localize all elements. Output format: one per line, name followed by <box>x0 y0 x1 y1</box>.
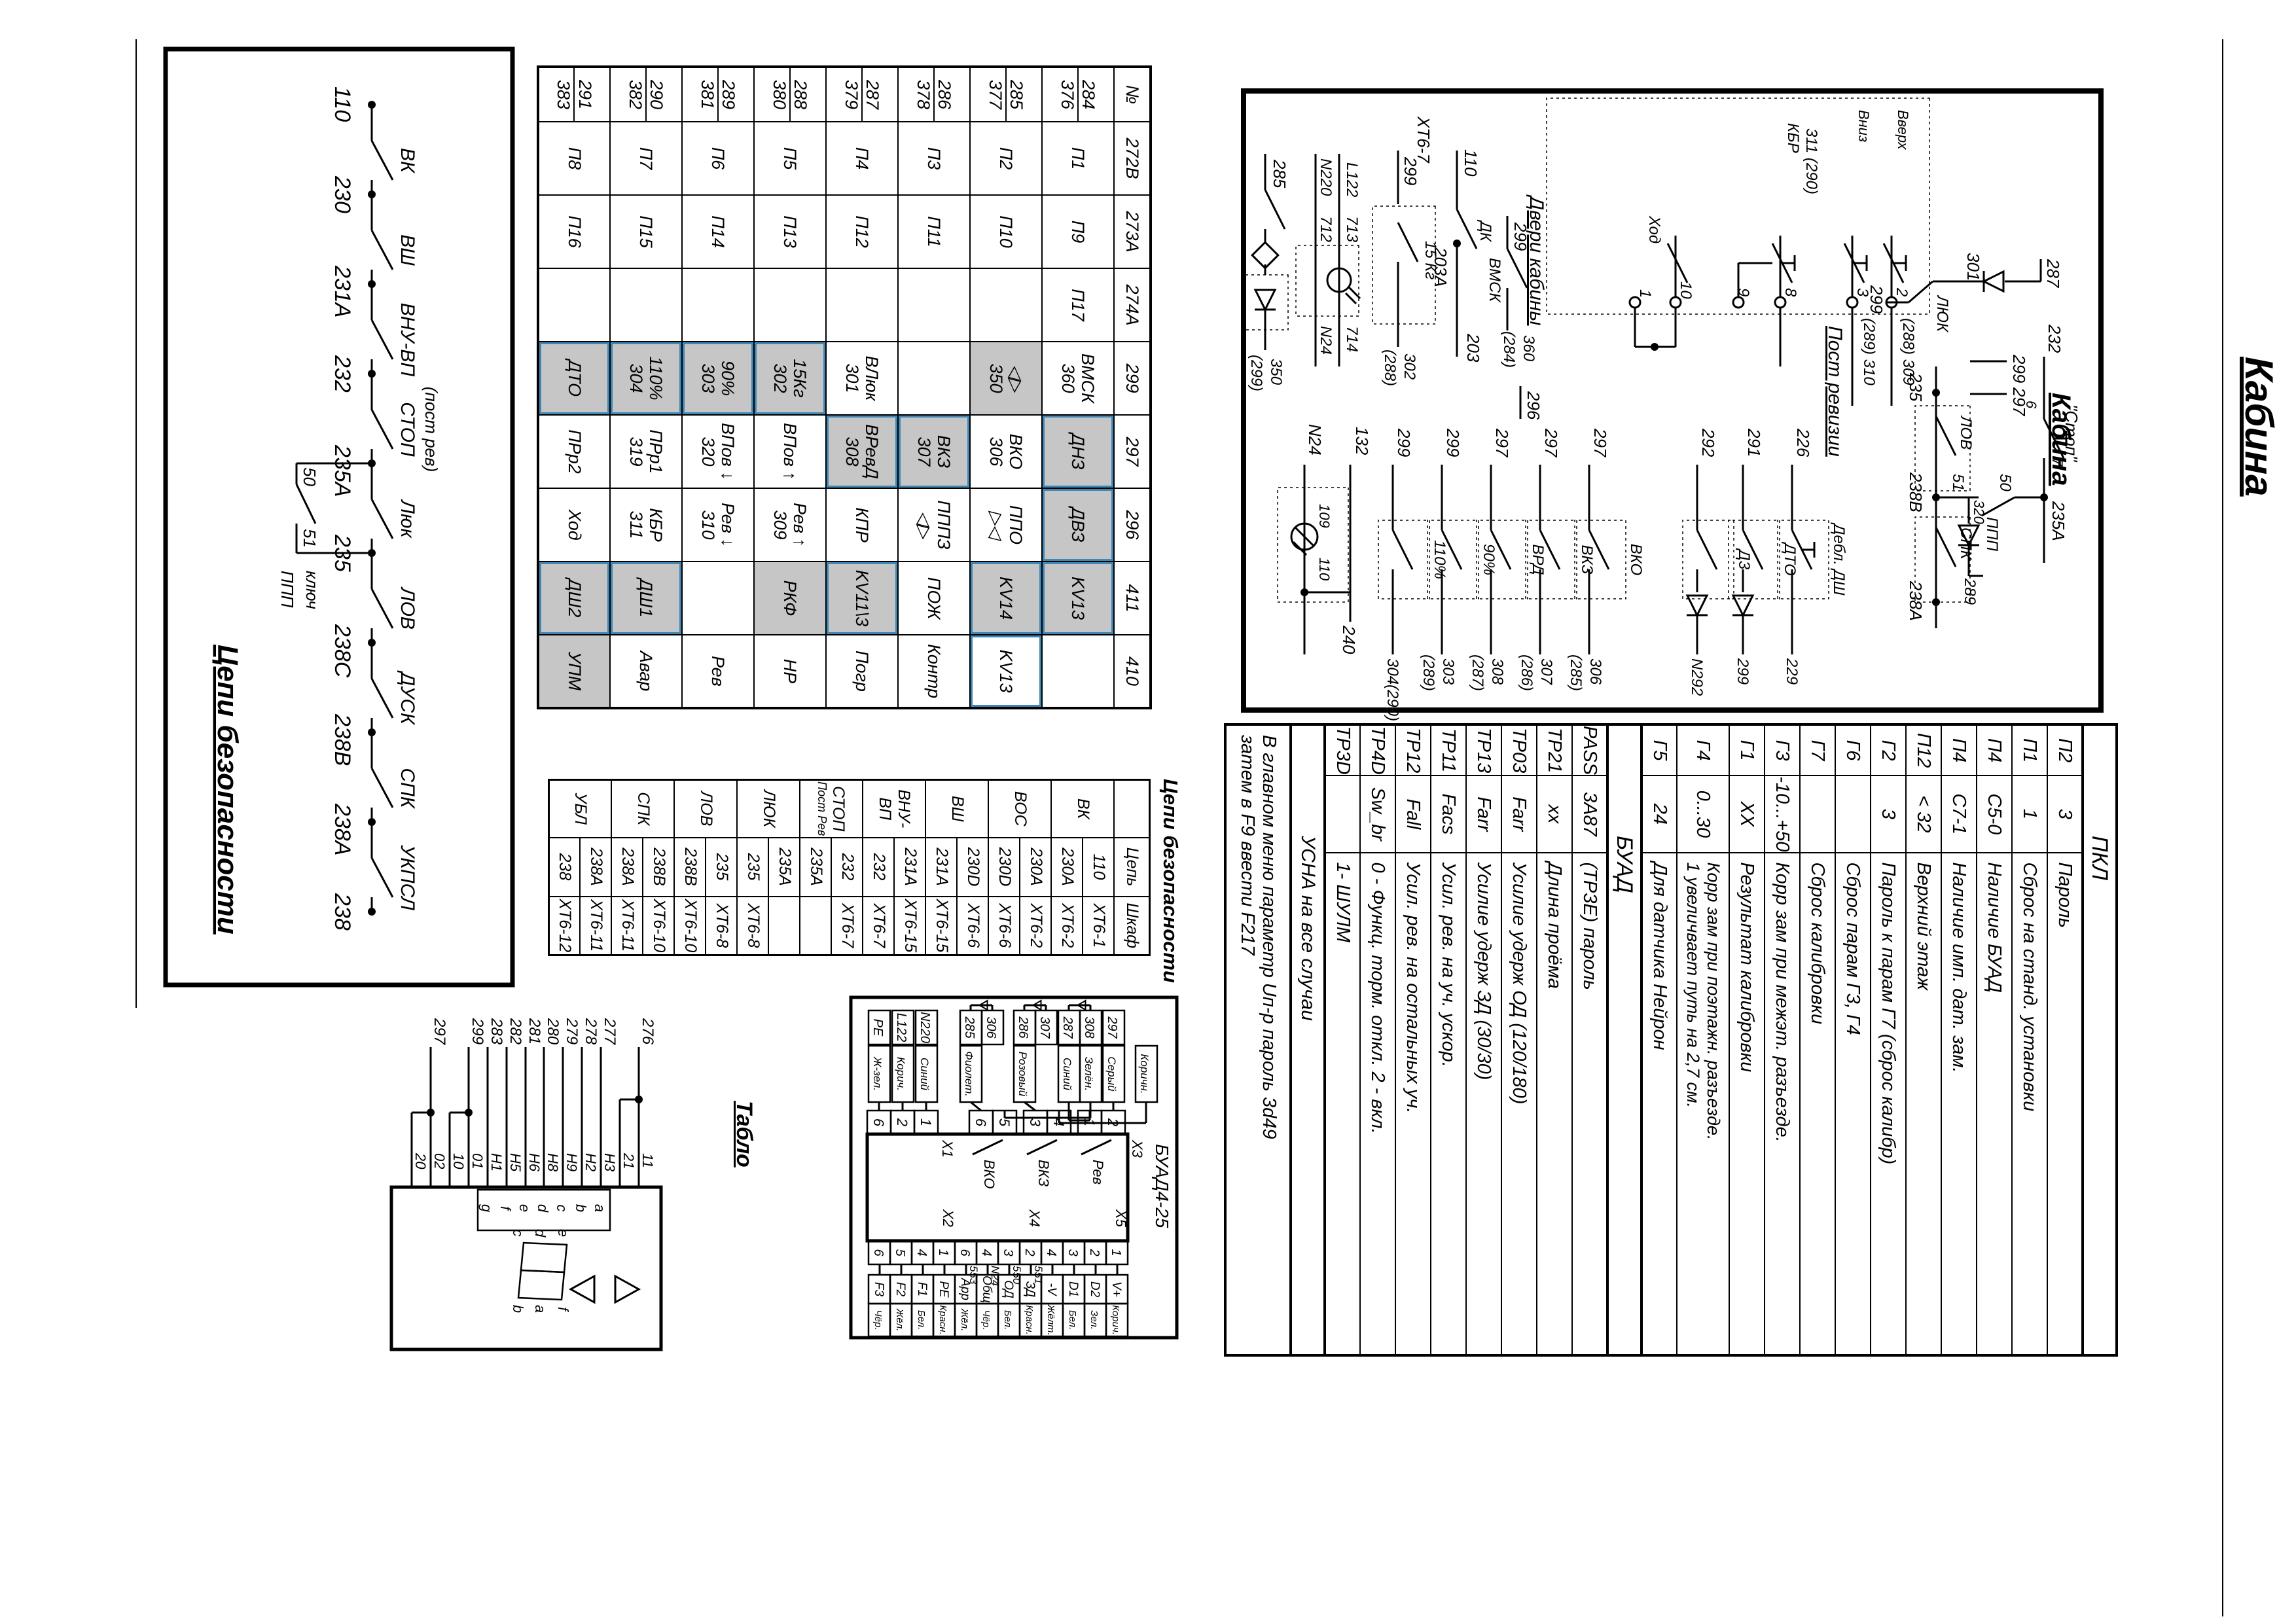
label: Зелён. <box>1083 1057 1095 1091</box>
t2-circuit: ВНУ-ВП <box>863 780 926 838</box>
label: ВШ <box>397 234 418 266</box>
relay-matrix: №272В273А274А299297296411410284376П1П9П1… <box>537 65 1152 709</box>
param-value: 1 <box>2012 776 2047 852</box>
t1-cell: Контр <box>898 635 970 708</box>
label: СПК <box>1957 527 1975 561</box>
t1-cell: П6 <box>682 122 754 195</box>
t2-wire: 231А <box>926 838 958 897</box>
label: ВКО <box>981 1160 997 1189</box>
t1-row-number: 290382 <box>610 67 682 122</box>
t1-row-number: 287379 <box>826 67 898 122</box>
label: 304(290) <box>1384 658 1401 721</box>
param-value: Farr <box>1501 776 1537 852</box>
label: 286 <box>1016 1016 1030 1039</box>
label: X1 <box>939 1139 956 1158</box>
label: H2 <box>583 1153 599 1171</box>
rotated-drawing-sheet: КабинаПост ревизии(288) 3092Вверх(289) 3… <box>0 0 2296 1623</box>
t1-cell: ВЛюк301 <box>826 342 898 415</box>
label: 297 <box>431 1018 448 1046</box>
param-desc: Пароль к парам Г7 (сброс калибр) <box>1871 853 1906 1355</box>
param-value <box>1325 776 1360 852</box>
label: ВКЗ <box>1035 1160 1052 1187</box>
label: КБР <box>1784 123 1802 153</box>
label: X2 <box>940 1209 956 1227</box>
label: 10 <box>1677 281 1695 299</box>
label: Синий <box>1061 1058 1073 1091</box>
label: 283 <box>488 1018 505 1045</box>
label: 299 <box>2009 354 2029 383</box>
label: 235 <box>1906 372 1926 402</box>
label: (289) 310 <box>1860 318 1878 385</box>
label: 299 <box>1443 428 1463 457</box>
t1-cell <box>970 268 1042 342</box>
t1-cell: ПРр1319 <box>610 415 682 488</box>
label: 307 <box>1037 1016 1052 1039</box>
label: 6 <box>870 1118 887 1127</box>
label: 3 <box>1066 1249 1080 1256</box>
t1-cell: ПРр2 <box>538 415 610 488</box>
label: 50 <box>300 467 319 486</box>
label: N220 <box>918 1012 932 1043</box>
label: 299 <box>469 1018 486 1044</box>
label: 238А <box>1906 580 1926 621</box>
t2-term: ХТ6-10 <box>675 897 706 955</box>
label: 311 (290) <box>1803 128 1820 194</box>
t2-header-cell: Цепь <box>1115 838 1150 897</box>
t2-term <box>800 897 832 955</box>
label: 235А <box>330 444 355 497</box>
label: 291 <box>1744 428 1764 457</box>
screenshot-root: { "colors":{"gray":"#c6c6c6","blue":"#41… <box>0 0 2296 1623</box>
label: Рев <box>1090 1160 1106 1185</box>
label: (286) <box>1518 654 1535 691</box>
param-name: Г1 <box>1729 724 1765 776</box>
label: 297 <box>1105 1016 1119 1039</box>
t1-row-number: 285377 <box>970 67 1042 122</box>
t1-cell: РКФ <box>754 562 826 635</box>
t2-term: ХТ6-6 <box>958 897 989 955</box>
label: Пост ревизии <box>1824 326 1846 457</box>
label: ДУСК <box>397 670 418 726</box>
label: (284) <box>1500 331 1518 368</box>
label: b <box>510 1305 526 1313</box>
param-desc: (ТР3Е) пароль <box>1572 853 1607 1355</box>
label: 714 <box>1343 326 1361 352</box>
chain-title: Цепи безопасности <box>211 645 243 935</box>
param-desc: Пароль <box>2047 853 2083 1355</box>
label: 287 <box>1060 1016 1075 1039</box>
t1-header-cell: 411 <box>1114 562 1151 635</box>
param-desc: 0 - Функц. торм. откл. 2 - вкл. <box>1360 853 1395 1355</box>
label: 296 <box>1524 391 1543 420</box>
t2-wire: 235 <box>706 838 738 897</box>
label: H6 <box>526 1153 543 1172</box>
param-value: Facs <box>1431 776 1466 852</box>
param-name: Г4 <box>1677 724 1729 776</box>
label: 02 <box>431 1153 448 1169</box>
label: Красн. <box>937 1305 948 1334</box>
label: 21 <box>620 1152 637 1169</box>
param-desc: Сброс калибровки <box>1800 853 1835 1355</box>
t1-header-cell: № <box>1114 67 1151 122</box>
t1-header-cell: 299 <box>1114 342 1151 415</box>
t1-cell <box>898 268 970 342</box>
label: 297 <box>1492 428 1512 458</box>
label: 15 Кг <box>1422 241 1439 280</box>
param-value: < 32 <box>1906 776 1941 852</box>
label: H9 <box>564 1153 580 1171</box>
label: c <box>510 1230 526 1237</box>
label: X4 <box>1026 1209 1043 1227</box>
param-name: П1 <box>2012 724 2047 776</box>
param-value: 3 <box>2047 776 2083 852</box>
label: ВРД <box>1529 544 1547 575</box>
label: 4 <box>914 1249 929 1256</box>
label: ЛЮК <box>1933 294 1951 333</box>
t2-wire: 230А <box>1020 838 1052 897</box>
t2-wire: 238А <box>612 838 643 897</box>
t2-term: ХТ6-8 <box>706 897 738 955</box>
label: Вниз <box>1856 110 1872 142</box>
parameters-table: ПКЛП23ПарольП11Сброс на станд. установки… <box>1224 723 2118 1357</box>
label: (288) <box>1381 349 1399 386</box>
t2-term: ХТ6-15 <box>926 897 958 955</box>
label: ЗД <box>1023 1281 1037 1297</box>
label: 299 <box>1511 222 1530 251</box>
table2-title: Цепи безопасности <box>1158 779 1182 983</box>
t1-cell: KV13 <box>970 635 1042 708</box>
label: "Стоп" <box>2062 404 2081 463</box>
t2-wire: 238 <box>549 838 581 897</box>
t2-circuit: ВОС <box>989 780 1052 838</box>
param-desc: Наличие имп. дат. зам. <box>1941 853 1977 1355</box>
label: 306 <box>984 1016 998 1039</box>
label: 277 <box>601 1018 619 1046</box>
t2-term: ХТ6-8 <box>738 897 769 955</box>
label: Дебл. ДШ <box>1830 522 1848 596</box>
label: (285) <box>1567 654 1585 691</box>
label: 1 <box>1636 289 1654 298</box>
param-name: ТР11 <box>1431 724 1466 776</box>
t1-cell: ДШ1 <box>610 562 682 635</box>
t2-wire: 235А <box>769 838 800 897</box>
label: 279 <box>563 1018 581 1044</box>
label: Бел. <box>1067 1310 1078 1330</box>
param-value: С7-1 <box>1941 776 1977 852</box>
t2-header-cell <box>1115 780 1150 838</box>
label: 240 <box>1339 625 1359 654</box>
t2-wire: 230D <box>958 838 989 897</box>
t1-row-number: 288380 <box>754 67 826 122</box>
label: Бел. <box>916 1310 927 1330</box>
label: Ж-зел. <box>871 1056 884 1091</box>
label: 2 <box>1087 1248 1102 1256</box>
label: a <box>532 1305 548 1313</box>
param-desc: Усилие удерж ЗД (30/30) <box>1466 853 1501 1355</box>
label: СТОП <box>397 402 418 457</box>
t1-cell: 110%304 <box>610 342 682 415</box>
label: Люк <box>397 499 418 539</box>
t1-cell: KV13 <box>1042 562 1114 635</box>
t1-cell: КПР <box>826 488 898 562</box>
t1-cell: ВКЗ307 <box>898 415 970 488</box>
label: 232 <box>2045 324 2064 353</box>
label: ЛОВ <box>1957 415 1975 450</box>
menu-note: В главном меню параметр Uп-р пароль 3d49… <box>1225 724 1291 1355</box>
label: X5 <box>1113 1209 1129 1228</box>
t1-cell: П12 <box>826 195 898 268</box>
label: Красн. <box>1024 1305 1035 1334</box>
label: g <box>478 1204 495 1213</box>
label: 110 <box>1461 149 1480 177</box>
param-value: 3 <box>1871 776 1906 852</box>
label: 10 <box>450 1153 467 1169</box>
t2-term: ХТ6-2 <box>1020 897 1052 955</box>
label: 285 <box>1270 159 1289 188</box>
param-desc: Усил. рев. на уч. ускор. <box>1431 853 1466 1355</box>
label: X3 <box>1129 1139 1145 1158</box>
t1-cell <box>754 268 826 342</box>
label: 4 <box>1044 1249 1058 1256</box>
label: 297 <box>1541 428 1561 458</box>
label: Ход <box>1645 215 1663 243</box>
t2-circuit: СПК <box>612 780 675 838</box>
label: Зел. <box>1088 1310 1100 1330</box>
label: 297 <box>1590 428 1610 458</box>
param-name: ТР3D <box>1325 724 1360 776</box>
param-desc: Усил. рев. на остальных уч. <box>1395 853 1431 1355</box>
label: F3 <box>872 1282 886 1297</box>
t2-wire: 238А <box>581 838 612 897</box>
t1-cell: П16 <box>538 195 610 268</box>
t1-header-cell: 274А <box>1114 268 1151 342</box>
label: 308 <box>1082 1016 1096 1038</box>
param-value <box>1800 776 1835 852</box>
label: 713 <box>1343 216 1361 243</box>
t1-cell: ДВЗ <box>1042 488 1114 562</box>
param-name: ТР03 <box>1501 724 1537 776</box>
label: H1 <box>488 1153 505 1171</box>
t1-cell: П15 <box>610 195 682 268</box>
param-name: Г7 <box>1800 724 1835 776</box>
t1-cell: П4 <box>826 122 898 195</box>
label: 230 <box>330 175 355 213</box>
label: 320 <box>1971 500 1987 524</box>
label: ППП <box>278 571 297 608</box>
parameters: ПКЛП23ПарольП11Сброс на станд. установки… <box>1224 723 2118 1357</box>
label: PE <box>870 1019 885 1037</box>
label: 3 <box>1001 1249 1015 1256</box>
t1-row-number: 284376 <box>1042 67 1114 122</box>
label: V+ <box>1109 1281 1123 1297</box>
label: Розовый <box>1016 1052 1029 1097</box>
label: 01 <box>469 1153 486 1169</box>
label: f <box>497 1206 514 1212</box>
label: 1 <box>936 1249 950 1256</box>
t1-cell: П13 <box>754 195 826 268</box>
t1-cell: ВПов ↓320 <box>682 415 754 488</box>
label: N24 <box>1305 424 1325 455</box>
t1-cell <box>610 268 682 342</box>
t2-term: ХТ6-15 <box>895 897 926 955</box>
t1-cell: П1 <box>1042 122 1114 195</box>
t2-circuit: ВК <box>1052 780 1115 838</box>
label: 20 <box>412 1152 429 1169</box>
t1-cell: Авар <box>610 635 682 708</box>
label: N24 <box>1317 326 1335 355</box>
safety-circuits-table: ЦепьШкафВК110ХТ6-1230АХТ6-2ВОС230АХТ6-22… <box>548 779 1151 956</box>
param-desc: Результат калибровки <box>1729 853 1765 1355</box>
t1-header-cell: 410 <box>1114 635 1151 708</box>
param-name: ТР4D <box>1360 724 1395 776</box>
t2-term: ХТ6-7 <box>832 897 863 955</box>
label: 5 <box>893 1249 907 1257</box>
t1-cell: ППО▷◁ <box>970 488 1042 562</box>
t1-cell: ДНЗ <box>1042 415 1114 488</box>
label: 4 <box>979 1249 994 1256</box>
params-section-header: ПКЛ <box>2083 724 2117 1355</box>
param-name: Г2 <box>1871 724 1906 776</box>
label: -V <box>1045 1283 1058 1297</box>
label: 301 <box>1964 253 1983 281</box>
label: 51 <box>300 529 319 548</box>
param-desc: Длина проёма <box>1537 853 1572 1355</box>
label: H3 <box>601 1153 618 1172</box>
param-value: Sw_br <box>1360 776 1395 852</box>
label: Чёр. <box>872 1310 884 1330</box>
t1-row-number: 286378 <box>898 67 970 122</box>
t1-cell: П17 <box>1042 268 1114 342</box>
t2-term: ХТ6-1 <box>1083 897 1115 955</box>
label: d <box>532 1229 548 1238</box>
label: N292 <box>1688 658 1706 696</box>
t1-cell: П2 <box>970 122 1042 195</box>
t1-cell: П8 <box>538 122 610 195</box>
param-name: П2 <box>2047 724 2083 776</box>
label: 307 <box>1537 658 1555 686</box>
label: Арр <box>958 1277 972 1300</box>
label: Серый <box>1105 1056 1118 1092</box>
label: 297 <box>2009 387 2029 417</box>
label: F2 <box>893 1282 907 1297</box>
label: ДТО <box>1781 541 1799 576</box>
label: (пост рев) <box>422 387 441 472</box>
param-value <box>1835 776 1871 852</box>
t1-row-number: 289381 <box>682 67 754 122</box>
t2-wire: 235А <box>800 838 832 897</box>
label: 285 <box>962 1016 977 1039</box>
label: ЛОВ <box>397 586 418 630</box>
label: ДК <box>1477 219 1494 243</box>
t1-header-cell: 296 <box>1114 488 1151 562</box>
t2-term <box>769 897 800 955</box>
param-name: П4 <box>1941 724 1977 776</box>
label: e <box>555 1229 571 1237</box>
t1-cell: КБР311 <box>610 488 682 562</box>
param-desc: Сброс на станд. установки <box>2012 853 2047 1355</box>
label: 203 <box>1463 333 1483 363</box>
label: 238А <box>330 803 355 855</box>
label: Чёр. <box>980 1310 992 1330</box>
t1-cell: П10 <box>970 195 1042 268</box>
label: 235А <box>2049 501 2068 541</box>
t1-header-cell: 273А <box>1114 195 1151 268</box>
label: F1 <box>915 1282 929 1296</box>
label: 712 <box>1317 216 1335 242</box>
t2-circuit: ВШ <box>926 780 989 838</box>
t2-wire: 230А <box>1052 838 1083 897</box>
label: D2 <box>1088 1281 1102 1298</box>
label: 287 <box>2043 259 2063 289</box>
label: УКПСЛ <box>397 844 418 910</box>
t2-term: ХТ6-7 <box>863 897 895 955</box>
param-name: ТР21 <box>1537 724 1572 776</box>
label: ВКЗ <box>1578 545 1596 575</box>
label: Жёлт. <box>1045 1304 1056 1335</box>
label: (289) <box>1420 654 1437 691</box>
param-name: П4 <box>1977 724 2012 776</box>
t1-cell <box>826 268 898 342</box>
param-value: 24 <box>1641 776 1677 852</box>
safety-wires: ЦепьШкафВК110ХТ6-1230АХТ6-2ВОС230АХТ6-22… <box>548 779 1151 956</box>
param-desc: Корр зам при межэт. разъезде. <box>1765 853 1800 1355</box>
label: 51 <box>1949 474 1967 491</box>
label: 299 <box>1867 285 1886 313</box>
label: f <box>555 1307 571 1313</box>
t1-cell: KV11\3 <box>826 562 898 635</box>
t2-term: ХТ6-2 <box>1052 897 1083 955</box>
label: 90% <box>1480 544 1498 575</box>
t2-wire: 238В <box>643 838 675 897</box>
t1-cell: ПОЖ <box>898 562 970 635</box>
label: 360 <box>1520 335 1537 362</box>
label: 9 <box>1734 288 1752 296</box>
t1-cell: ВПов ↑ <box>754 415 826 488</box>
t2-circuit: УБЛ <box>549 780 612 838</box>
label: 11 <box>639 1153 656 1168</box>
param-value: хх <box>1537 776 1572 852</box>
label: 110 <box>1316 558 1333 581</box>
t1-cell: 15Кг302 <box>754 342 826 415</box>
label: 299 <box>1401 156 1420 185</box>
t1-cell: KV14 <box>970 562 1042 635</box>
t1-row-number: 291383 <box>538 67 610 122</box>
label: 238С <box>330 624 355 678</box>
t1-cell: П14 <box>682 195 754 268</box>
param-desc: Наличие БУАД <box>1977 853 2012 1355</box>
label: Жёл. <box>894 1308 905 1332</box>
page-title: Кабина <box>2236 357 2282 497</box>
label: 1 <box>918 1118 934 1126</box>
label: L122 <box>1343 162 1361 197</box>
t1-cell: 90%303 <box>682 342 754 415</box>
label: 276 <box>639 1018 656 1045</box>
param-value: С5-0 <box>1977 776 2012 852</box>
label: e <box>516 1204 533 1212</box>
relay-matrix-table: №272В273А274А299297296411410284376П1П9П1… <box>537 65 1152 709</box>
t1-cell: ДШ2 <box>538 562 610 635</box>
label: b <box>573 1204 589 1212</box>
param-value: ХХ <box>1729 776 1765 852</box>
label: 232 <box>330 355 355 393</box>
t2-term: ХТ6-10 <box>643 897 675 955</box>
label: Коричн. <box>1138 1054 1151 1094</box>
label: (287) <box>1469 654 1486 691</box>
t2-term: ХТ6-12 <box>549 897 581 955</box>
tablo-title: Табло <box>731 1101 757 1168</box>
t1-cell <box>682 562 754 635</box>
label: ВКО <box>1627 544 1645 576</box>
